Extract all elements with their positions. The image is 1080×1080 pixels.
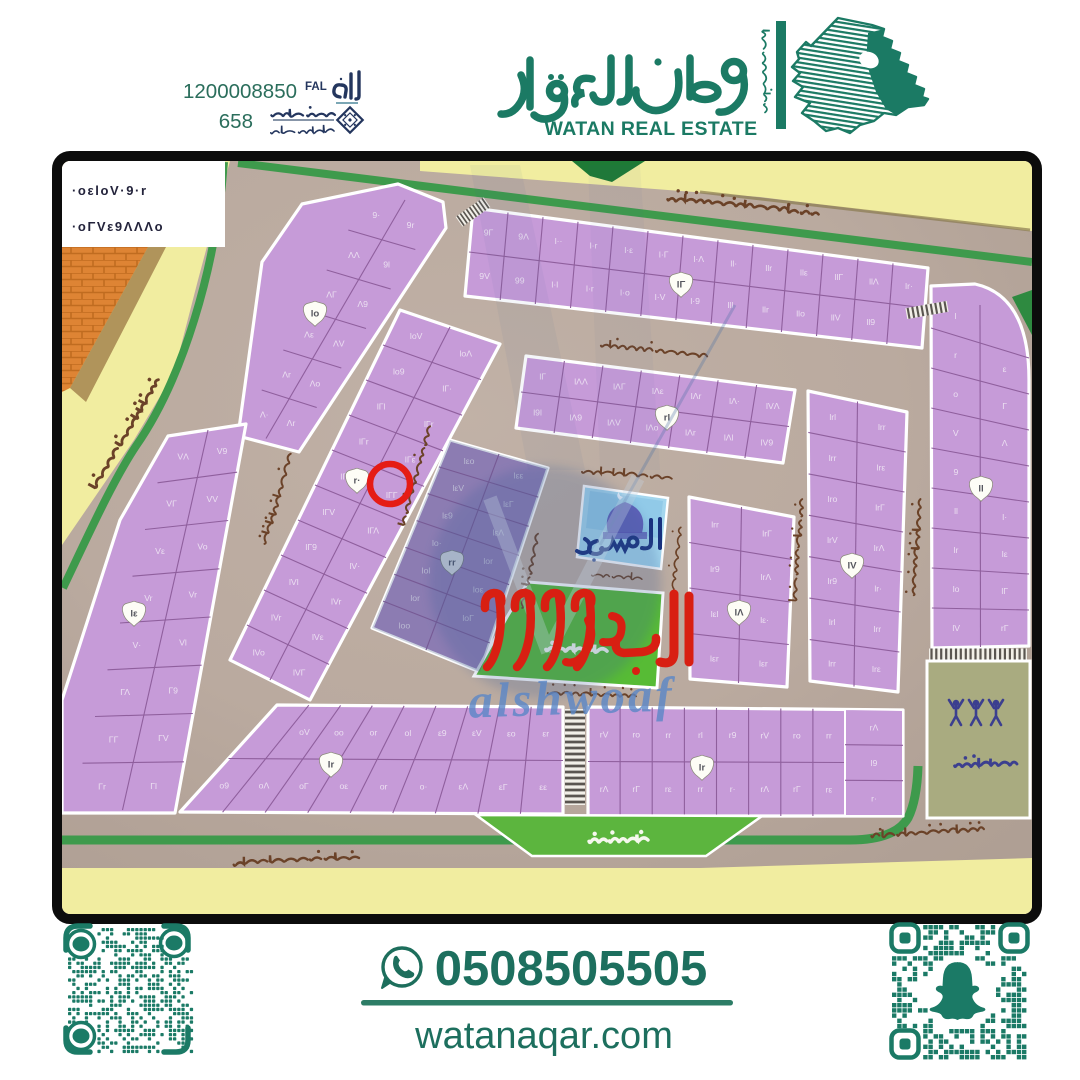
svg-text:or: or xyxy=(370,728,378,738)
svg-text:ll9: ll9 xyxy=(866,317,875,327)
svg-text:rV: rV xyxy=(760,730,769,740)
svg-text:llr: llr xyxy=(762,304,769,314)
svg-text:oΛ: oΛ xyxy=(259,781,270,791)
svg-text:ll·: ll· xyxy=(730,259,737,269)
svg-text:lVr: lVr xyxy=(271,612,281,622)
svg-text:l·V: l·V xyxy=(655,292,666,302)
svg-text:·oεloV·9·r: ·oεloV·9·r xyxy=(72,183,148,198)
svg-text:ΓV: ΓV xyxy=(158,733,169,743)
svg-text:rΛ: rΛ xyxy=(600,784,609,794)
svg-text:lΓr: lΓr xyxy=(359,437,369,447)
svg-text:lr·: lr· xyxy=(874,583,882,593)
svg-text:ε: ε xyxy=(1003,364,1007,374)
svg-text:lro: lro xyxy=(828,494,838,504)
svg-text:lr: lr xyxy=(699,762,706,773)
svg-text:Λε: Λε xyxy=(304,330,314,340)
svg-text:ε9: ε9 xyxy=(438,728,447,738)
svg-text:lrl: lrl xyxy=(829,617,836,627)
svg-text:lrr: lrr xyxy=(878,422,886,432)
svg-text:9·: 9· xyxy=(372,210,380,220)
svg-text:lΓ·: lΓ· xyxy=(442,384,452,394)
svg-text:lVl: lVl xyxy=(289,577,299,587)
svg-text:lVΛ: lVΛ xyxy=(766,401,780,411)
svg-text:Λ9: Λ9 xyxy=(357,299,368,309)
svg-text:lrr: lrr xyxy=(829,453,837,463)
svg-text:l·: l· xyxy=(1002,512,1007,522)
svg-text:lεr: lεr xyxy=(759,658,768,668)
svg-text:r9: r9 xyxy=(729,730,737,740)
svg-text:lrr: lrr xyxy=(711,519,719,529)
svg-text:V·: V· xyxy=(132,640,141,650)
svg-text:VΓ: VΓ xyxy=(166,499,177,509)
svg-text:lΓV: lΓV xyxy=(323,507,336,517)
svg-text:llΛ: llΛ xyxy=(869,276,879,286)
svg-text:lo9: lo9 xyxy=(393,366,405,376)
svg-text:llΓ: llΓ xyxy=(835,272,844,282)
svg-text:Vr: Vr xyxy=(144,593,152,603)
svg-text:ΛΛ: ΛΛ xyxy=(348,250,360,260)
svg-text:llε: llε xyxy=(800,267,808,277)
svg-text:lε·: lε· xyxy=(760,615,769,625)
svg-text:εε: εε xyxy=(539,782,547,792)
svg-text:rV: rV xyxy=(600,729,609,739)
svg-text:ll: ll xyxy=(954,506,958,516)
svg-text:l·l: l·l xyxy=(551,279,558,289)
svg-text:ΛV: ΛV xyxy=(333,339,345,349)
svg-text:lΛ: lΛ xyxy=(734,607,744,618)
svg-text:rε: rε xyxy=(826,784,833,794)
svg-text:l·9: l·9 xyxy=(690,296,700,306)
svg-text:l·Γ: l·Γ xyxy=(659,250,669,260)
svg-text:Vr: Vr xyxy=(189,590,197,600)
svg-text:Λr: Λr xyxy=(282,370,291,380)
svg-text:lrr: lrr xyxy=(873,624,881,634)
svg-text:llV: llV xyxy=(831,313,841,323)
svg-text:lVo: lVo xyxy=(253,648,265,658)
svg-text:lΓ: lΓ xyxy=(677,279,686,290)
svg-text:l: l xyxy=(955,311,957,321)
svg-text:oε: oε xyxy=(339,781,348,791)
svg-text:Vl: Vl xyxy=(179,638,187,648)
svg-text:lε: lε xyxy=(130,608,138,619)
svg-text:εV: εV xyxy=(472,728,482,738)
svg-text:lεl: lεl xyxy=(711,609,719,619)
svg-text:lΓ: lΓ xyxy=(1001,586,1008,596)
svg-text:658: 658 xyxy=(219,110,253,133)
svg-text:rΓ: rΓ xyxy=(793,784,801,794)
svg-text:ΓΓ: ΓΓ xyxy=(109,734,119,744)
svg-text:ΓΛ: ΓΛ xyxy=(120,687,130,697)
svg-text:lεr: lεr xyxy=(710,654,719,664)
svg-text:lrΛ: lrΛ xyxy=(761,572,772,582)
svg-text:lV9: lV9 xyxy=(761,437,774,447)
svg-text:lr: lr xyxy=(328,759,335,770)
svg-text:rε: rε xyxy=(665,784,672,794)
svg-text:oo: oo xyxy=(334,727,344,737)
svg-text:Γr: Γr xyxy=(98,782,106,792)
svg-text:llr: llr xyxy=(765,263,772,273)
svg-text:lrΛ: lrΛ xyxy=(874,543,885,553)
svg-text:lrl: lrl xyxy=(829,412,836,422)
svg-text:V: V xyxy=(953,428,959,438)
svg-text:rΓ: rΓ xyxy=(632,784,640,794)
svg-text:r·: r· xyxy=(871,793,877,803)
svg-text:o: o xyxy=(953,389,958,399)
svg-text:lrΓ: lrΓ xyxy=(875,503,885,513)
svg-text:ro: ro xyxy=(632,730,640,740)
svg-text:1200008850: 1200008850 xyxy=(183,80,297,103)
svg-text:9l: 9l xyxy=(383,260,390,270)
svg-text:ll: ll xyxy=(978,483,983,494)
svg-text:l9: l9 xyxy=(871,758,878,768)
svg-text:VΛ: VΛ xyxy=(177,452,189,462)
svg-text:Vo: Vo xyxy=(197,542,207,552)
svg-text:lr9: lr9 xyxy=(827,576,837,586)
svg-text:l·r: l·r xyxy=(586,284,594,294)
svg-text:εΓ: εΓ xyxy=(499,782,508,792)
svg-text:Λr: Λr xyxy=(287,418,296,428)
svg-text:9: 9 xyxy=(953,467,958,477)
svg-text:εo: εo xyxy=(507,729,516,739)
svg-text:lΓ9: lΓ9 xyxy=(305,542,317,552)
svg-text:εr: εr xyxy=(542,729,549,739)
svg-text:lr9: lr9 xyxy=(710,564,720,574)
svg-text:lrε: lrε xyxy=(877,462,886,472)
svg-text:lΓΓ: lΓΓ xyxy=(386,490,398,500)
svg-text:alshwoaf: alshwoaf xyxy=(467,666,677,728)
svg-text:·oΓVε9ΛΛΛo: ·oΓVε9ΛΛΛo xyxy=(72,219,164,234)
svg-text:lΛΛ: lΛΛ xyxy=(574,376,588,386)
svg-text:llo: llo xyxy=(796,309,805,319)
svg-text:Λ: Λ xyxy=(1002,438,1008,448)
svg-text:lΓl: lΓl xyxy=(377,401,386,411)
svg-text:rΛ: rΛ xyxy=(760,784,769,794)
svg-text:watanaqar.com: watanaqar.com xyxy=(414,1015,673,1057)
svg-text:loΛ: loΛ xyxy=(460,348,473,358)
svg-text:l·Λ: l·Λ xyxy=(693,254,704,264)
svg-text:lVε: lVε xyxy=(312,632,324,642)
svg-text:rr: rr xyxy=(826,731,832,741)
svg-text:lrr: lrr xyxy=(828,658,836,668)
svg-text:or: or xyxy=(380,781,388,791)
svg-text:Λo: Λo xyxy=(310,378,321,388)
svg-text:rr: rr xyxy=(698,784,704,794)
svg-text:Γ: Γ xyxy=(1002,401,1007,411)
svg-text:loV: loV xyxy=(410,331,423,341)
svg-text:rΓ: rΓ xyxy=(1001,623,1009,633)
svg-text:oΓ: oΓ xyxy=(299,781,309,791)
svg-text:lV: lV xyxy=(847,560,857,571)
svg-text:ol: ol xyxy=(405,728,412,738)
svg-text:lr·: lr· xyxy=(905,281,913,291)
svg-text:oV: oV xyxy=(299,727,310,737)
svg-text:lΛr: lΛr xyxy=(691,391,702,401)
svg-text:lV·: lV· xyxy=(349,561,360,571)
svg-text:lrε: lrε xyxy=(872,664,881,674)
svg-text:FAL: FAL xyxy=(305,81,327,93)
svg-text:lVΓ: lVΓ xyxy=(293,667,306,677)
svg-text:ΛΓ: ΛΓ xyxy=(326,290,337,300)
svg-text:Vε: Vε xyxy=(155,546,165,556)
svg-text:WATAN REAL ESTATE: WATAN REAL ESTATE xyxy=(545,118,758,140)
svg-text:Λ·: Λ· xyxy=(260,409,269,419)
svg-text:lΛr: lΛr xyxy=(685,427,696,437)
svg-text:lrΓ: lrΓ xyxy=(762,529,772,539)
svg-text:ro: ro xyxy=(793,731,801,741)
svg-text:lε: lε xyxy=(1002,549,1008,559)
svg-text:9r: 9r xyxy=(407,220,415,230)
svg-text:o·: o· xyxy=(420,782,428,792)
svg-text:lVr: lVr xyxy=(331,596,341,606)
svg-text:lΛl: lΛl xyxy=(724,432,734,442)
svg-text:lrV: lrV xyxy=(827,535,838,545)
svg-text:εΛ: εΛ xyxy=(458,782,468,792)
svg-text:l··: l·· xyxy=(555,236,563,246)
svg-text:rΛ: rΛ xyxy=(870,722,879,732)
svg-text:lo: lo xyxy=(311,308,320,319)
svg-text:lo: lo xyxy=(953,584,960,594)
svg-text:r: r xyxy=(954,350,957,360)
svg-text:r·: r· xyxy=(354,475,361,486)
svg-text:o9: o9 xyxy=(219,780,229,790)
svg-text:VV: VV xyxy=(207,494,219,504)
svg-text:lr: lr xyxy=(954,545,959,555)
svg-text:9V: 9V xyxy=(479,271,490,281)
svg-text:V9: V9 xyxy=(217,446,228,456)
svg-text:rr: rr xyxy=(665,730,671,740)
svg-text:lΓΛ: lΓΛ xyxy=(367,526,379,536)
svg-text:Γl: Γl xyxy=(150,781,157,791)
svg-text:lV: lV xyxy=(952,623,960,633)
svg-text:r·: r· xyxy=(730,784,736,794)
svg-text:rl: rl xyxy=(698,730,703,740)
svg-text:lΛ·: lΛ· xyxy=(729,396,740,406)
svg-text:Γ9: Γ9 xyxy=(168,685,178,695)
svg-text:0508505505: 0508505505 xyxy=(435,942,708,996)
